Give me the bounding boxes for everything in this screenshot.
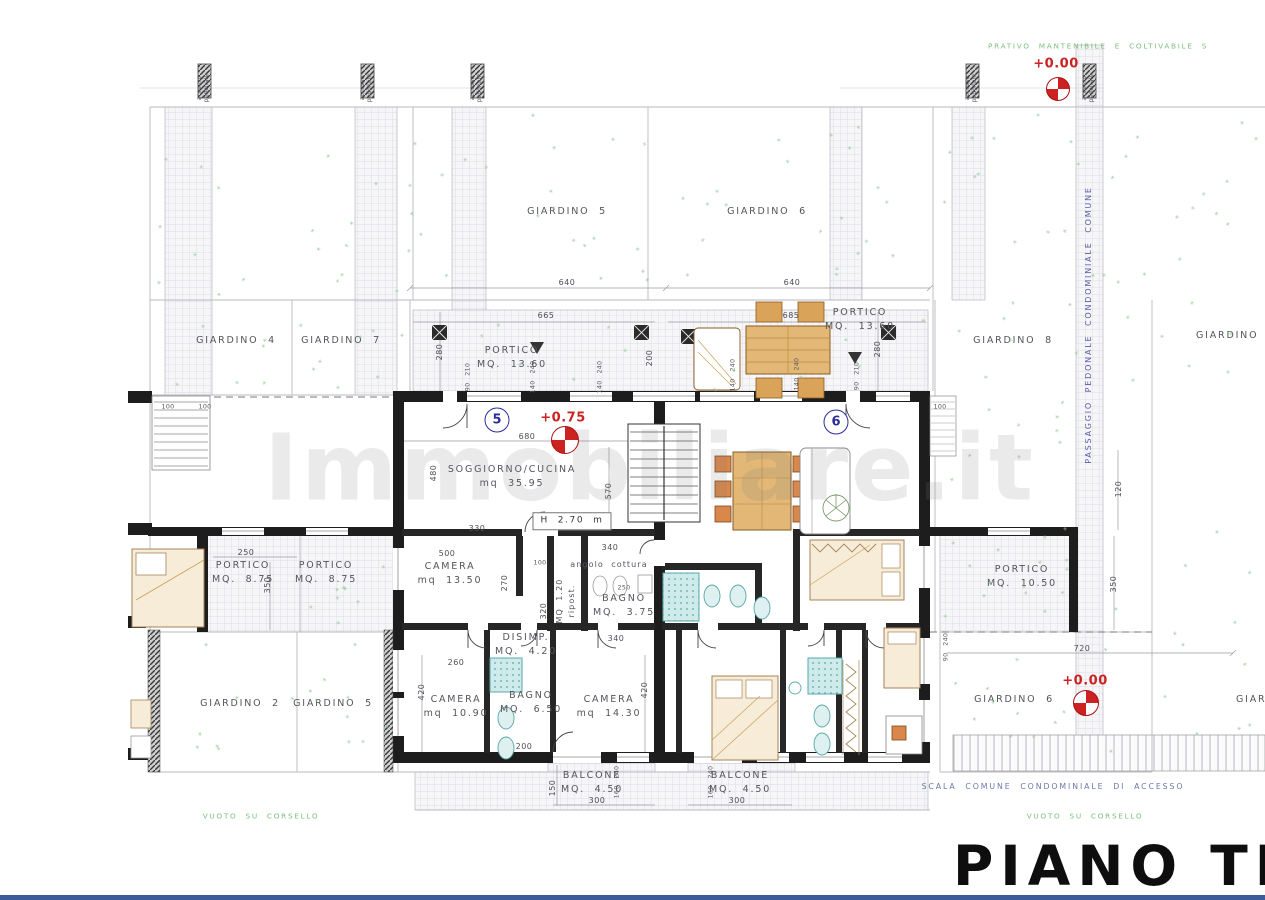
dim-350-portico: 350 xyxy=(262,577,274,594)
grass-mark: * xyxy=(335,621,344,629)
grass-mark: * xyxy=(298,322,306,331)
grass-mark: * xyxy=(1224,221,1231,230)
grass-mark: * xyxy=(1055,413,1064,420)
grass-mark: * xyxy=(1057,400,1066,408)
grass-mark: * xyxy=(1075,159,1084,167)
grass-mark: * xyxy=(699,237,705,246)
dim-320: 320 xyxy=(538,603,550,620)
grass-mark: * xyxy=(1050,716,1058,725)
grass-mark: * xyxy=(407,183,416,189)
dim-685: 685 xyxy=(783,310,800,322)
grass-mark: * xyxy=(1109,604,1118,611)
grass-mark: * xyxy=(441,273,449,282)
grass-mark: * xyxy=(1051,427,1060,433)
grass-mark: * xyxy=(1224,179,1231,188)
grass-mark: * xyxy=(1068,302,1076,307)
grass-mark: * xyxy=(1195,731,1203,736)
grass-mark: * xyxy=(1028,733,1037,739)
grass-mark: * xyxy=(645,278,650,286)
grass-mark: * xyxy=(1074,351,1080,360)
grass-mark: * xyxy=(1125,314,1133,323)
dim-640-right: 640 xyxy=(784,277,801,289)
grass-mark: * xyxy=(1061,228,1068,237)
garden-bottom-cut-label: GIARDINO xyxy=(1236,693,1265,707)
camera-14-30-label: CAMERA mq 14.30 xyxy=(577,693,642,722)
grass-mark: * xyxy=(348,643,356,648)
grass-mark: * xyxy=(942,195,948,204)
grass-mark: * xyxy=(1126,377,1135,384)
grass-mark: * xyxy=(969,136,973,144)
vuoto-corsello-left: VUOTO SU CORSELLO xyxy=(203,812,320,823)
grass-mark: * xyxy=(971,712,977,721)
grass-mark: * xyxy=(847,146,853,155)
dim-90-210-left: 90 210 xyxy=(463,363,472,391)
grass-mark: * xyxy=(357,739,366,745)
benchmark-top-right xyxy=(1046,77,1070,101)
grass-mark: * xyxy=(1173,631,1181,636)
dim-90-240-right: 90 240 xyxy=(941,633,950,661)
grass-mark: * xyxy=(582,243,590,252)
dim-100-a: 100 xyxy=(162,402,175,411)
bagno-3-75-label: BAGNO MQ. 3.75 xyxy=(593,592,655,621)
garden-7-label: GIARDINO 7 xyxy=(301,334,381,348)
portico-8-75-b-label: PORTICO MQ. 8.75 xyxy=(295,559,357,588)
grass-mark: * xyxy=(1058,708,1067,715)
grass-mark: * xyxy=(311,363,317,372)
grass-mark: * xyxy=(460,154,468,163)
grass-mark: * xyxy=(161,156,168,165)
dim-340-bagno: 340 xyxy=(608,633,625,645)
grass-mark: * xyxy=(395,289,399,297)
grass-mark: * xyxy=(888,249,895,258)
grass-mark: * xyxy=(372,177,379,186)
grass-mark: * xyxy=(407,249,415,253)
grass-mark: * xyxy=(153,279,162,285)
grass-mark: * xyxy=(215,744,224,751)
grass-mark: * xyxy=(238,277,247,285)
grass-mark: * xyxy=(381,565,386,574)
bagno-6-50-label: BAGNO MQ. 6.50 xyxy=(500,689,562,718)
grass-mark: * xyxy=(409,207,417,216)
drawing-title: PIANO TERRA xyxy=(953,834,1265,898)
grass-mark: * xyxy=(305,604,314,611)
dim-100-c: 100 xyxy=(934,402,947,411)
grass-mark: * xyxy=(1060,587,1068,596)
grass-mark: * xyxy=(344,243,352,252)
grass-mark: * xyxy=(334,275,340,284)
grass-mark: * xyxy=(1013,240,1017,248)
grass-mark: * xyxy=(835,267,839,275)
grass-mark: * xyxy=(605,321,614,329)
accesso-pedonale-2: accesso pedonale xyxy=(360,74,374,102)
grass-mark: * xyxy=(397,333,404,342)
grass-mark: * xyxy=(1046,226,1050,234)
grass-mark: * xyxy=(216,746,225,754)
grass-mark: * xyxy=(418,231,425,240)
grass-mark: * xyxy=(1102,269,1106,277)
grass-mark: * xyxy=(852,250,861,255)
grass-mark: * xyxy=(945,150,952,159)
grass-mark: * xyxy=(1179,560,1187,569)
grass-mark: * xyxy=(610,136,617,145)
grass-mark: * xyxy=(840,336,849,342)
grass-mark: * xyxy=(996,543,1003,552)
elevation-top: +0.00 xyxy=(1033,54,1078,74)
elevation-bottom: +0.00 xyxy=(1062,671,1107,691)
dim-140-240-d: 140 240 xyxy=(792,358,801,391)
garden-4-label: GIARDINO 4 xyxy=(196,334,276,348)
grass-mark: * xyxy=(334,595,340,604)
grass-mark: * xyxy=(828,133,837,140)
grass-mark: * xyxy=(1239,662,1248,669)
dim-350-right: 350 xyxy=(1108,576,1120,593)
grass-mark: * xyxy=(316,243,321,252)
balcone-right-label: BALCONE MQ. 4.50 xyxy=(709,769,771,798)
grass-mark: * xyxy=(620,348,628,357)
grass-mark: * xyxy=(1186,203,1195,210)
grass-mark: * xyxy=(317,358,325,363)
grass-mark: * xyxy=(953,678,962,686)
grass-mark: * xyxy=(1103,647,1112,655)
grass-mark: * xyxy=(1065,139,1073,144)
grass-mark: * xyxy=(817,226,826,234)
grass-mark: * xyxy=(957,329,966,336)
grass-mark: * xyxy=(195,742,204,750)
dim-280-left: 280 xyxy=(434,344,446,361)
grass-mark: * xyxy=(1190,297,1197,306)
dim-100-b: 100 xyxy=(199,402,212,411)
grass-mark: * xyxy=(776,134,781,142)
grass-mark: * xyxy=(1211,211,1219,219)
ripostiglio-label: MQ 1.20 ripost. xyxy=(554,579,578,624)
grass-mark: * xyxy=(1065,567,1073,571)
grass-mark: * xyxy=(1134,131,1139,140)
grass-mark: * xyxy=(1062,523,1070,532)
angolo-cottura-label: angolo cottura xyxy=(570,559,647,571)
grass-mark: * xyxy=(331,588,340,594)
grass-mark: * xyxy=(199,161,206,170)
grass-mark: * xyxy=(336,385,345,391)
grass-mark: * xyxy=(834,272,842,281)
grass-mark: * xyxy=(1240,121,1248,126)
dim-100-corridor: 100 xyxy=(534,558,547,567)
grass-mark: * xyxy=(836,213,845,221)
dim-140-240-b: 140 240 xyxy=(595,361,604,394)
grass-mark: * xyxy=(1200,192,1206,201)
grass-mark: * xyxy=(640,269,647,278)
grass-mark: * xyxy=(174,382,183,388)
grass-mark: * xyxy=(588,236,596,241)
grass-mark: * xyxy=(200,324,209,330)
grass-mark: * xyxy=(704,201,709,210)
dim-640-left: 640 xyxy=(559,277,576,289)
grass-mark: * xyxy=(918,317,926,326)
accesso-pedonale-3: accesso pedonale xyxy=(470,74,484,102)
grass-mark: * xyxy=(336,272,344,277)
garden-2-label: GIARDINO 2 xyxy=(200,697,280,711)
grass-mark: * xyxy=(571,235,580,243)
grass-mark: * xyxy=(782,155,791,163)
dim-330: 330 xyxy=(469,523,486,535)
grass-mark: * xyxy=(980,590,987,599)
grass-mark: * xyxy=(213,293,222,298)
grass-mark: * xyxy=(1246,723,1252,732)
grass-mark: * xyxy=(641,138,647,147)
grass-mark: * xyxy=(1035,113,1039,121)
dim-300-left: 300 xyxy=(589,795,606,807)
watermark: Immobiliare.it xyxy=(264,415,1036,522)
grass-mark: * xyxy=(1178,638,1185,647)
accesso-pedonale-4: accesso pedonale xyxy=(965,74,979,102)
dim-140-240-c: 140 240 xyxy=(728,359,737,392)
garden-5-top-label: GIARDINO 5 xyxy=(527,205,607,219)
grass-mark: * xyxy=(986,406,995,413)
dim-260: 260 xyxy=(448,657,465,669)
portico-10-50-label: PORTICO MQ. 10.50 xyxy=(987,563,1057,592)
camera-10-90-label: CAMERA mq 10.90 xyxy=(424,693,489,722)
grass-mark: * xyxy=(154,225,162,230)
garden-6-bottom-label: GIARDINO 6 xyxy=(974,693,1054,707)
dim-340-top: 340 xyxy=(602,542,619,554)
grass-mark: * xyxy=(1122,154,1129,163)
benchmark-center xyxy=(551,426,579,454)
dim-500: 500 xyxy=(439,548,456,560)
grass-mark: * xyxy=(998,315,1007,321)
dim-150-balcone: 150 xyxy=(547,780,559,797)
grass-mark: * xyxy=(876,184,885,190)
grass-mark: * xyxy=(708,386,717,392)
grass-mark: * xyxy=(1225,367,1234,374)
grass-mark: * xyxy=(1060,558,1069,565)
grass-mark: * xyxy=(987,135,995,140)
grass-mark: * xyxy=(235,379,244,385)
grass-mark: * xyxy=(1115,279,1122,288)
grass-mark: * xyxy=(203,638,210,647)
benchmark-bottom-right xyxy=(1073,690,1099,716)
grass-mark: * xyxy=(598,276,606,285)
grass-mark: * xyxy=(863,236,872,244)
grass-mark: * xyxy=(1008,730,1013,738)
grass-mark: * xyxy=(1141,267,1146,275)
grass-mark: * xyxy=(344,714,353,722)
dim-200-stair: 200 xyxy=(644,350,656,367)
passaggio-pedonale-note: PASSAGGIO PEDONALE CONDOMINIALE COMUNE xyxy=(1083,186,1095,463)
dim-90-210-right: 90 210 xyxy=(852,362,861,390)
dim-280-right: 280 xyxy=(872,341,884,358)
grass-mark: * xyxy=(1043,535,1051,539)
dim-270: 270 xyxy=(499,575,511,592)
grass-mark: * xyxy=(193,251,202,257)
dim-200-bagno: 200 xyxy=(516,741,533,753)
grass-mark: * xyxy=(1104,749,1113,755)
grass-mark: * xyxy=(1212,525,1219,534)
grass-mark: * xyxy=(370,327,379,334)
grass-mark: * xyxy=(198,732,206,736)
grass-mark: * xyxy=(346,739,354,743)
grass-mark: * xyxy=(1233,619,1242,624)
grass-mark: * xyxy=(346,218,355,226)
grass-mark: * xyxy=(1176,257,1182,266)
garden-5-bottom-label: GIARDINO 5 xyxy=(293,697,373,711)
grass-mark: * xyxy=(550,141,558,150)
portico-top-right-label: PORTICO MQ. 13.60 xyxy=(825,306,895,335)
dim-250-bagno: 250 xyxy=(618,583,631,592)
dim-300-right: 300 xyxy=(729,795,746,807)
grass-mark: * xyxy=(631,245,640,252)
grass-mark: * xyxy=(375,375,380,383)
garden-6-top-label: GIARDINO 6 xyxy=(727,205,807,219)
unit-6-circle: 6 xyxy=(824,410,849,435)
grass-mark: * xyxy=(571,376,579,385)
accesso-pedonale-1: accesso pedonale xyxy=(197,74,211,102)
grass-mark: * xyxy=(408,140,417,146)
grass-mark: * xyxy=(1163,694,1172,700)
accesso-pedonale-5: accesso pedonale xyxy=(1082,74,1096,102)
grass-mark: * xyxy=(975,169,984,176)
grass-mark: * xyxy=(1251,133,1259,142)
grass-mark: * xyxy=(478,329,485,338)
grass-mark: * xyxy=(496,319,501,328)
dim-160-240-right: 160 240 xyxy=(706,766,715,799)
disimpegno-label: DISIMP. MQ. 4.20 xyxy=(495,631,557,660)
grass-mark: * xyxy=(484,165,491,174)
grass-mark: * xyxy=(972,170,980,179)
grass-mark: * xyxy=(381,724,390,730)
grass-mark: * xyxy=(1109,172,1118,180)
dim-720: 720 xyxy=(1074,643,1091,655)
unit-5-circle: 5 xyxy=(485,408,510,433)
grass-mark: * xyxy=(439,173,448,181)
grass-mark: * xyxy=(1247,567,1255,576)
grass-mark: * xyxy=(1011,657,1020,663)
grass-mark: * xyxy=(1187,360,1191,368)
camera-13-50-label: CAMERA mq 13.50 xyxy=(418,560,483,589)
garden-right-cut-label: GIARDINO xyxy=(1196,329,1258,343)
grass-mark: * xyxy=(684,272,690,281)
grass-mark: * xyxy=(942,611,951,619)
grass-mark: * xyxy=(711,189,720,195)
grass-mark: * xyxy=(544,189,553,196)
grass-mark: * xyxy=(530,112,538,121)
dim-140-240-a: 140 240 xyxy=(528,361,537,394)
dim-665: 665 xyxy=(538,310,555,322)
garden-8-label: GIARDINO 8 xyxy=(973,334,1053,348)
grass-mark: * xyxy=(680,196,687,205)
dim-160-240-left: 160 240 xyxy=(612,766,621,799)
grass-mark: * xyxy=(306,228,315,236)
grass-mark: * xyxy=(1054,440,1063,446)
dim-120: 120 xyxy=(1113,481,1125,498)
grass-mark: * xyxy=(950,541,955,549)
grass-mark: * xyxy=(1156,333,1165,339)
grass-mark: * xyxy=(262,377,269,386)
floor-plan-canvas: PRATIVO MANTENIBILE E COLTIVABILE S+0.00… xyxy=(0,0,1265,900)
grass-mark: * xyxy=(1009,296,1016,305)
grass-mark: * xyxy=(325,149,332,158)
grass-mark: * xyxy=(355,596,362,605)
grass-mark: * xyxy=(984,371,988,379)
note-grass-top: PRATIVO MANTENIBILE E COLTIVABILE S xyxy=(988,42,1208,53)
grass-mark: * xyxy=(966,559,972,568)
scala-comune-note: SCALA COMUNE CONDOMINIALE DI ACCESSO xyxy=(922,781,1185,793)
dim-250-portico: 250 xyxy=(238,547,255,559)
vuoto-corsello-right: VUOTO SU CORSELLO xyxy=(1027,812,1144,823)
grass-mark: * xyxy=(1015,708,1024,716)
grass-mark: * xyxy=(1233,726,1242,731)
grass-mark: * xyxy=(212,185,221,193)
bottom-edge-bar xyxy=(0,895,1265,900)
grass-mark: * xyxy=(1175,215,1183,219)
grass-mark: * xyxy=(881,199,890,206)
grass-mark: * xyxy=(321,676,330,684)
grass-mark: * xyxy=(1040,608,1047,617)
grass-mark: * xyxy=(853,122,862,130)
